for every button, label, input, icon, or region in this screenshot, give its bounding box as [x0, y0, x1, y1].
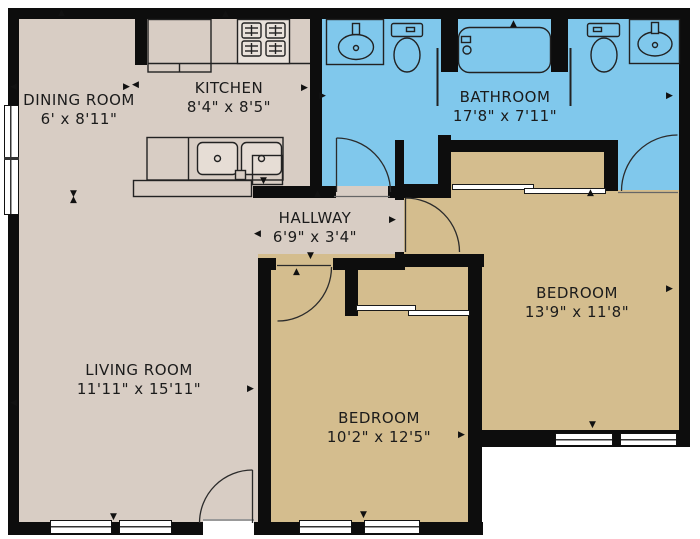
- sliding-door-closet-bottom-1: [356, 305, 416, 311]
- label-bathroom: BATHROOM 17'8" x 7'11": [453, 88, 557, 126]
- dim-marker-right: ▶: [666, 285, 673, 294]
- window-left-divider: [4, 157, 19, 160]
- dim-marker-up: ▲: [293, 268, 300, 277]
- wall-bedroom-bottom-right: [468, 254, 482, 535]
- dim-marker-right: ▶: [123, 83, 130, 92]
- label-living-room: LIVING ROOM 11'11" x 15'11": [77, 361, 201, 399]
- sliding-door-closet-bottom-2: [408, 310, 470, 316]
- floor-plan: DINING ROOM 6' x 8'11" KITCHEN 8'4" x 8'…: [0, 0, 700, 539]
- window-bedroom-bottom-2: [364, 520, 420, 534]
- room-dims: 8'4" x 8'5": [187, 98, 271, 117]
- dim-marker-left: ◀: [10, 399, 17, 408]
- dim-marker-down: ▼: [110, 513, 117, 522]
- dim-marker-left: ◀: [10, 83, 17, 92]
- dim-marker-up: ▲: [222, 10, 229, 19]
- dim-marker-up: ▲: [314, 190, 321, 199]
- label-dining-room: DINING ROOM 6' x 8'11": [23, 91, 135, 129]
- dim-marker-right: ▶: [247, 385, 254, 394]
- dim-marker-up: ▲: [510, 20, 517, 29]
- window-left-wall: [4, 105, 19, 215]
- dim-marker-left: ◀: [254, 230, 261, 239]
- label-bedroom-bottom: BEDROOM 10'2" x 12'5": [327, 409, 431, 447]
- window-living-2: [119, 520, 172, 534]
- room-dims: 17'8" x 7'11": [453, 107, 557, 126]
- room-dims: 11'11" x 15'11": [77, 380, 201, 399]
- room-name: DINING ROOM: [23, 91, 135, 110]
- dim-marker-left: ◀: [132, 81, 139, 90]
- dim-marker-down: ▼: [589, 421, 596, 430]
- wall-kitchen-divider-stub: [135, 8, 147, 65]
- dim-marker-right: ▶: [389, 216, 396, 225]
- dim-marker-right: ▶: [319, 92, 326, 101]
- wall-closet-stub-right: [604, 140, 618, 191]
- wall-kitchen-bathroom: [310, 8, 322, 198]
- room-name: BEDROOM: [525, 284, 629, 303]
- room-floor-bedroom-bottom: [258, 254, 482, 535]
- wall-kitchen-bottom: [253, 186, 322, 198]
- room-name: HALLWAY: [273, 209, 357, 228]
- dim-marker-up: ▲: [70, 196, 77, 205]
- window-bedroom-bottom-1: [299, 520, 352, 534]
- entry-door-opening: [203, 519, 254, 535]
- label-bedroom-right: BEDROOM 13'9" x 11'8": [525, 284, 629, 322]
- dim-marker-up: ▲: [58, 9, 65, 18]
- room-name: KITCHEN: [187, 79, 271, 98]
- sliding-door-closet-right-1: [452, 184, 534, 190]
- wall-tub-stub-left: [441, 8, 458, 72]
- window-bedroom-right-2: [620, 433, 677, 446]
- wall-top: [8, 8, 690, 19]
- label-hallway: HALLWAY 6'9" x 3'4": [273, 209, 357, 247]
- wall-bath-bottom-stub-left: [322, 186, 336, 198]
- room-name: BEDROOM: [327, 409, 431, 428]
- dim-marker-right: ▶: [666, 92, 673, 101]
- dim-marker-down: ▼: [307, 252, 314, 261]
- label-kitchen: KITCHEN 8'4" x 8'5": [187, 79, 271, 117]
- dim-marker-right: ▶: [458, 431, 465, 440]
- room-name: BATHROOM: [453, 88, 557, 107]
- room-dims: 6'9" x 3'4": [273, 228, 357, 247]
- dim-marker-down: ▼: [360, 511, 367, 520]
- window-living-1: [50, 520, 112, 534]
- wall-closet-top: [438, 140, 618, 152]
- room-dims: 13'9" x 11'8": [525, 303, 629, 322]
- wall-bedroom-bottom-top-right: [333, 258, 405, 270]
- wall-linen-closet-bottom: [395, 184, 451, 198]
- wall-right: [679, 8, 690, 447]
- room-dims: 10'2" x 12'5": [327, 428, 431, 447]
- room-dims: 6' x 8'11": [23, 110, 135, 129]
- window-bedroom-right-1: [555, 433, 613, 446]
- room-name: LIVING ROOM: [77, 361, 201, 380]
- dim-marker-down: ▼: [260, 177, 267, 186]
- dim-marker-right: ▶: [301, 84, 308, 93]
- dim-marker-up: ▲: [587, 189, 594, 198]
- wall-bedroom-bottom-left: [258, 258, 271, 535]
- wall-tub-stub-right: [551, 8, 568, 72]
